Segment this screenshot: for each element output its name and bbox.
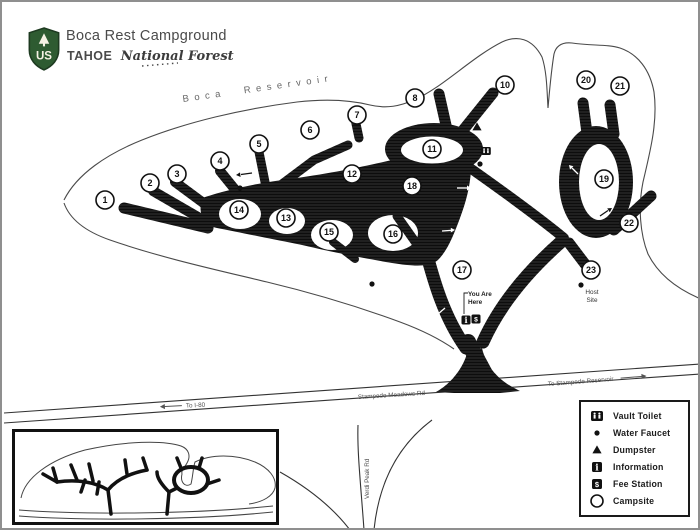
fee-station-icon: $ [472, 315, 481, 324]
svg-text:11: 11 [427, 144, 437, 154]
legend-item-dumpster: Dumpster [581, 442, 688, 459]
water-faucet-icon [369, 281, 374, 286]
svg-text:12: 12 [347, 169, 357, 179]
water-faucet-icon [578, 282, 583, 287]
legend-item-label: Campsite [613, 496, 654, 506]
page-title: Boca Rest Campground [66, 28, 227, 44]
legend-item-information: i Information [581, 459, 688, 476]
campsite-marker-8: 8 [406, 89, 424, 107]
svg-text:2: 2 [147, 178, 152, 188]
forest-service-shield-icon: US [26, 27, 62, 71]
svg-text:19: 19 [599, 174, 609, 184]
legend-item-water-faucet: Water Faucet [581, 425, 688, 442]
map-legend: Vault Toilet Water Faucet Dumpster i Inf… [579, 400, 690, 517]
campsite-marker-7: 7 [348, 106, 366, 124]
you-are-here: You Are Here [464, 291, 492, 314]
campsite-marker-11: 11 [423, 140, 441, 158]
campsite-marker-23: 23 [582, 261, 600, 279]
svg-text:13: 13 [281, 213, 291, 223]
information-icon: i [581, 459, 613, 475]
svg-text:1: 1 [102, 195, 107, 205]
svg-text:US: US [36, 50, 52, 62]
svg-text:3: 3 [174, 169, 179, 179]
water-faucet-icon [237, 185, 242, 190]
campsite-marker-20: 20 [577, 71, 595, 89]
svg-text:5: 5 [256, 139, 261, 149]
campsite-marker-21: 21 [611, 77, 629, 95]
campsite-marker-1: 1 [96, 191, 114, 209]
to-reservoir-text: To Stampede Reservoir [548, 376, 614, 388]
campsite-marker-22: 22 [620, 214, 638, 232]
host-site-line2: Site [586, 297, 597, 304]
water-faucet-icon [581, 425, 613, 441]
campsite-marker-12: 12 [343, 165, 361, 183]
svg-text:7: 7 [354, 110, 359, 120]
campsite-marker-19: 19 [595, 170, 613, 188]
inset-overview-map [12, 429, 279, 525]
campsite-marker-4: 4 [211, 152, 229, 170]
campsite-marker-14: 14 [230, 201, 248, 219]
forest-prefix: TAHOE [67, 49, 112, 63]
legend-item-vault-toilet: Vault Toilet [581, 408, 688, 425]
stampede-rd-label: Stampede Meadows Rd [358, 390, 426, 401]
svg-text:4: 4 [217, 156, 222, 166]
svg-text:10: 10 [500, 80, 510, 90]
legend-item-label: Water Faucet [613, 428, 670, 438]
host-site-line1: Host [585, 289, 598, 296]
svg-text:8: 8 [412, 93, 417, 103]
svg-text:20: 20 [581, 75, 591, 85]
svg-text:$: $ [474, 317, 478, 324]
campsite-marker-16: 16 [384, 225, 402, 243]
you-are-here-line2: Here [468, 299, 483, 306]
campsite-marker-10: 10 [496, 76, 514, 94]
verdi-peak-rd-label: Verdi Peak Rd [364, 458, 371, 499]
legend-item-label: Dumpster [613, 445, 656, 455]
svg-text:18: 18 [407, 181, 417, 191]
host-site-label: Host Site [585, 289, 598, 304]
campsite-icon [581, 493, 613, 509]
legend-item-label: Fee Station [613, 479, 663, 489]
svg-text:6: 6 [307, 125, 312, 135]
svg-text:21: 21 [615, 81, 625, 91]
campsite-marker-2: 2 [141, 174, 159, 192]
to-reservoir-label: To Stampede Reservoir [548, 373, 647, 388]
forest-name: National Forest [121, 49, 234, 64]
svg-text:23: 23 [586, 265, 596, 275]
campsite-marker-13: 13 [277, 209, 295, 227]
svg-text:16: 16 [388, 229, 398, 239]
campsite-marker-6: 6 [301, 121, 319, 139]
legend-item-label: Information [613, 462, 664, 472]
fee-station-icon: $ [581, 476, 613, 492]
campsite-marker-15: 15 [320, 223, 338, 241]
campsite-marker-17: 17 [453, 261, 471, 279]
vault-toilet-icon [581, 408, 613, 424]
legend-item-label: Vault Toilet [613, 411, 662, 421]
campground-map-page: i$ 1 2 3 4 5 6 7 8 10 [0, 0, 700, 530]
svg-text:15: 15 [324, 227, 334, 237]
vault-toilet-icon [481, 147, 491, 155]
information-icon: i [462, 315, 471, 325]
legend-item-fee-station: $ Fee Station [581, 476, 688, 493]
svg-text:22: 22 [624, 218, 634, 228]
campsite-marker-3: 3 [168, 165, 186, 183]
dumpster-icon [581, 442, 613, 458]
legend-item-campsite: Campsite [581, 493, 688, 510]
to-i80-text: To I-80 [186, 402, 206, 410]
svg-text:i: i [595, 463, 599, 473]
forest-title: TAHOE National Forest [67, 47, 234, 65]
inset-map-drawing [15, 432, 276, 522]
svg-text:17: 17 [457, 265, 467, 275]
svg-text:14: 14 [234, 205, 244, 215]
campsite-marker-18: 18 [403, 177, 421, 195]
svg-text:i: i [464, 315, 467, 325]
you-are-here-line1: You Are [468, 291, 492, 298]
reservoir-label: Boca Reservoir [182, 73, 334, 105]
water-faucet-icon [477, 161, 482, 166]
campsite-marker-5: 5 [250, 135, 268, 153]
